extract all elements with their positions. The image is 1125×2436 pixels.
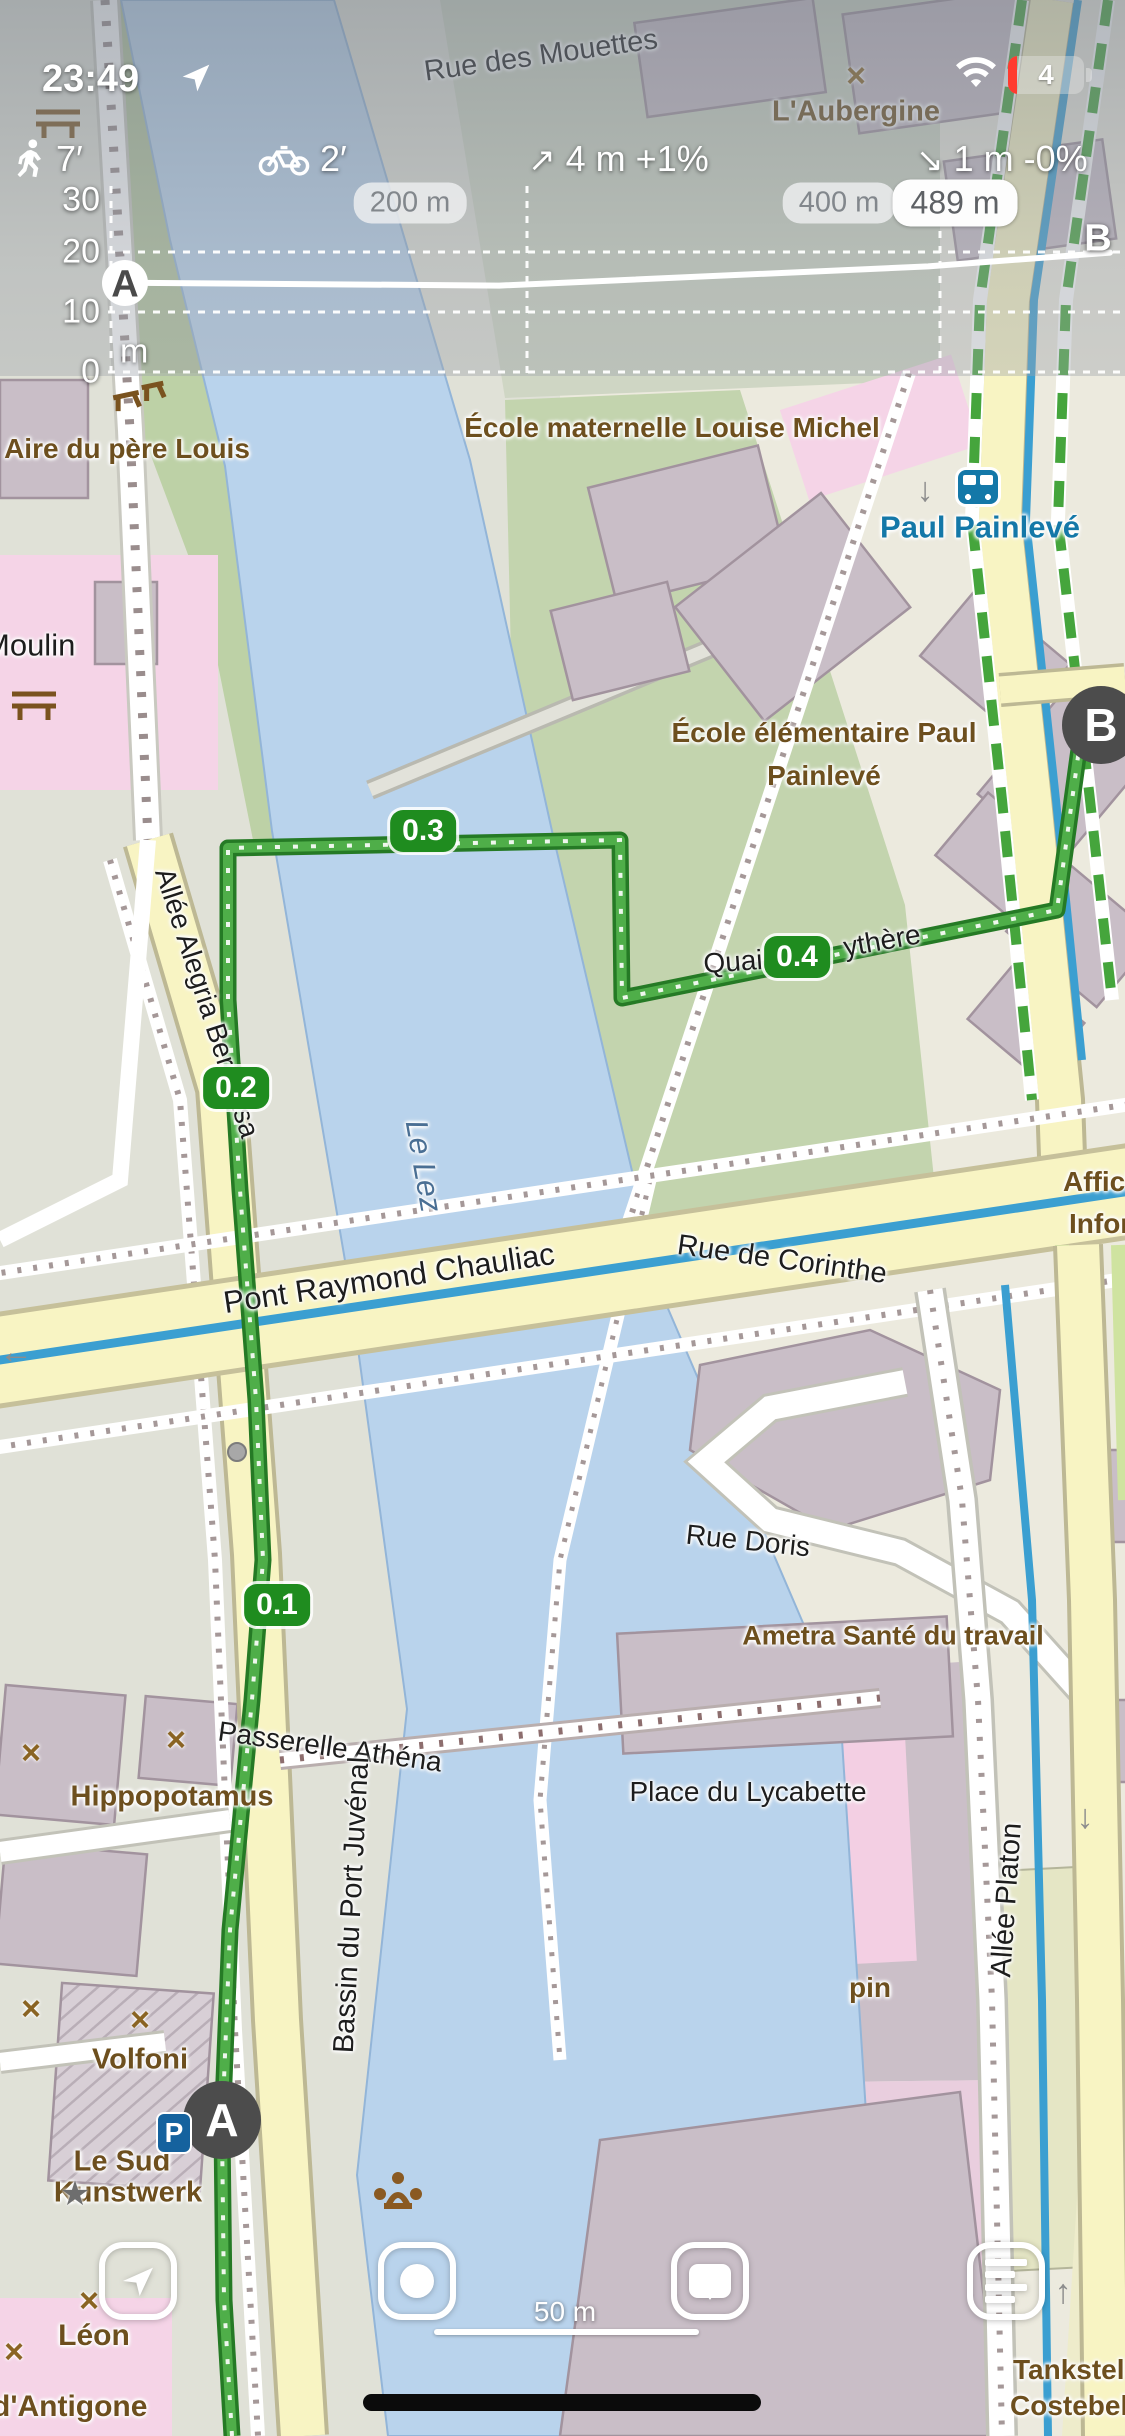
route-marker-A[interactable]: A: [183, 2081, 261, 2159]
map-label-aire-du-pere-louis: Aire du père Louis: [4, 435, 250, 463]
chart-end-label: B: [1084, 217, 1111, 260]
route-info-bar[interactable]: 7′ 2′ ↗ 4 m +1% ↘ 1 m -0%: [0, 138, 1125, 186]
map-label-rue-doris: Rue Doris: [685, 1521, 812, 1562]
oneway-left-icon: ←: [0, 1335, 33, 1369]
record-track-button[interactable]: [378, 2242, 456, 2320]
descent-arrow-icon: ↘: [916, 140, 944, 179]
scale-bar: [434, 2329, 699, 2335]
map-label-ametra-sante: Ametra Santé du travail: [742, 1623, 1044, 1650]
walk-time-value: 7′: [56, 138, 83, 180]
route-distance-badge-0-1: 0.1: [244, 1584, 310, 1626]
scale-label: 50 m: [534, 2296, 596, 2328]
star-icon: ★: [60, 2177, 90, 2211]
battery-percent: 4: [1008, 56, 1084, 94]
route-distance-badge-0-3: 0.3: [390, 810, 456, 852]
bubble-icon: [689, 2264, 731, 2298]
map-label-passerelle-athena: Passerelle Athéna: [216, 1717, 443, 1776]
elevation-unit: m: [120, 333, 148, 372]
wifi-icon: [952, 56, 1000, 97]
distance-pill-200m: 200 m: [354, 183, 467, 224]
menu-button[interactable]: [967, 2242, 1045, 2320]
oneway-down-icon: ↓: [1077, 1800, 1094, 1834]
elevation-tick-10: 10: [30, 293, 100, 332]
elevation-tick-0: 0: [30, 353, 100, 392]
record-dot-icon: [400, 2264, 434, 2298]
oneway-down-icon: ↓: [917, 473, 934, 507]
route-marker-B[interactable]: B: [1062, 686, 1125, 764]
route-distance-badge-0-2: 0.2: [203, 1067, 269, 1109]
map-label-le-lez: Le Lez: [401, 1117, 448, 1214]
home-indicator[interactable]: [363, 2394, 761, 2411]
ascent-arrow-icon: ↗: [528, 140, 556, 179]
walk-time-stat: 7′: [16, 138, 83, 180]
map-label-ecole-elementaire-1: École élémentaire Paul: [671, 719, 976, 747]
map-label-ecole-maternelle: École maternelle Louise Michel: [464, 414, 879, 442]
elevation-tick-30: 30: [30, 181, 100, 220]
descent-stat: ↘ 1 m -0%: [916, 138, 1088, 180]
route-distance-badge-0-4: 0.4: [764, 936, 830, 978]
parking-icon[interactable]: P: [158, 2114, 190, 2152]
ascent-stat: ↗ 4 m +1%: [528, 138, 709, 180]
bus-wheels: [964, 494, 992, 500]
bus-stop-icon[interactable]: [958, 470, 998, 504]
map-label-le-sud: Le Sud: [74, 2148, 171, 2177]
navigation-arrow-icon: [118, 2261, 158, 2301]
cross-icon: ×: [21, 1736, 41, 1770]
map-label-ecole-elementaire-2: Painlevé: [767, 762, 881, 790]
cross-icon: ×: [21, 1992, 41, 2026]
map-label-informati: Informati: [1069, 1210, 1125, 1238]
map-label-pont-raymond-chauliac: Pont Raymond Chauliac: [221, 1238, 556, 1318]
map-label-affichag: Affichag: [1063, 1168, 1125, 1196]
elevation-tick-20: 20: [30, 233, 100, 272]
map-label-bassin-du-port-juvenal: Bassin du Port Juvénal: [330, 1756, 374, 2054]
battery-icon: 4: [1008, 56, 1084, 94]
map-screen: Rue des MouettesL'AubergineAire du père …: [0, 0, 1125, 2436]
cross-icon: ×: [166, 1723, 186, 1757]
map-label-pin: pin: [849, 1974, 891, 2002]
place-info-button[interactable]: [671, 2242, 749, 2320]
bike-time-value: 2′: [320, 138, 347, 180]
map-label-volfoni: Volfoni: [92, 2046, 188, 2075]
distance-pill-489m: 489 m: [893, 180, 1018, 227]
distance-pill-400m: 400 m: [783, 183, 896, 224]
map-label-place-du-lycabette: Place du Lycabette: [629, 1778, 866, 1806]
map-label-allee-platon: Allée Platon: [987, 1822, 1027, 1978]
pedestrian-icon: [16, 139, 46, 179]
battery-nub: [1086, 68, 1092, 82]
menu-lines-icon: [985, 2259, 1027, 2303]
cross-icon: ×: [130, 2003, 150, 2037]
status-bar: 23:49 4: [0, 0, 1125, 110]
clock: 23:49: [42, 58, 139, 101]
map-label-hippopotamus: Hippopotamus: [71, 1783, 274, 1812]
ascent-value: 4 m +1%: [566, 138, 709, 180]
bicycle-icon: [258, 141, 310, 177]
location-services-icon: [180, 62, 212, 99]
map-label-quai: Quai: [703, 946, 764, 978]
descent-value: 1 m -0%: [954, 138, 1088, 180]
my-location-button[interactable]: [99, 2242, 177, 2320]
map-label-paul-painleve: Paul Painlevé: [880, 512, 1080, 543]
chart-start-label: A: [111, 263, 138, 306]
map-label-moulin: Moulin: [0, 630, 75, 661]
map-label-ythere: ythère: [841, 920, 923, 961]
bike-time-stat: 2′: [258, 138, 347, 180]
map-label-rue-de-corinthe: Rue de Corinthe: [675, 1231, 888, 1289]
